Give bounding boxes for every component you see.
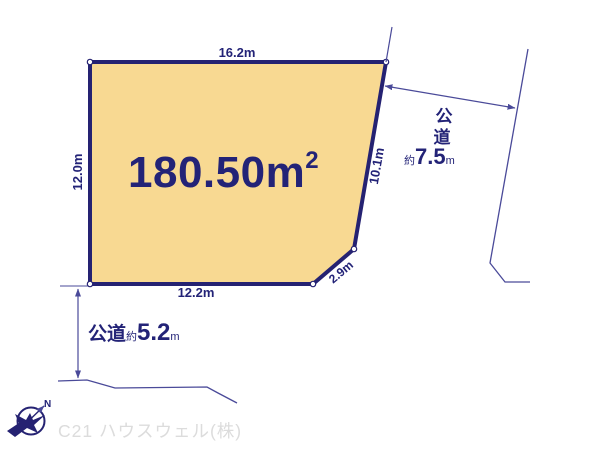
company-watermark: C21 ハウスウェル(株)	[58, 421, 242, 441]
east-road-edge-line	[490, 49, 530, 282]
parcel-area-label: 180.50m2	[128, 147, 319, 197]
dimension-top: 16.2m	[219, 45, 256, 60]
dimension-bottom: 12.2m	[178, 285, 215, 300]
east-road-width-arrow	[385, 86, 515, 108]
compass-north-label: N	[44, 399, 51, 410]
east-road: 公 道 約7.5m	[385, 27, 530, 282]
east-road-label-char1: 公	[436, 107, 453, 126]
dimension-left: 12.0m	[70, 154, 85, 191]
compass-icon: N	[7, 399, 51, 437]
vertex-dot	[87, 59, 92, 64]
diagram-canvas: 180.50m2 16.2m 12.0m 10.1m 12.2m 2.9m 公 …	[0, 0, 600, 450]
south-road-edge-line	[58, 380, 237, 403]
vertex-dot	[310, 281, 315, 286]
vertex-dot	[87, 281, 92, 286]
boundary-extension-line	[386, 27, 392, 62]
south-road: 公道約5.2m	[58, 286, 237, 403]
vertex-dot	[351, 246, 356, 251]
land-plot-diagram: 180.50m2 16.2m 12.0m 10.1m 12.2m 2.9m 公 …	[0, 0, 600, 450]
south-road-width-label: 公道約5.2m	[88, 319, 180, 346]
east-road-width-label: 約7.5m	[404, 144, 455, 169]
land-parcel: 180.50m2 16.2m 12.0m 10.1m 12.2m 2.9m	[70, 45, 389, 300]
